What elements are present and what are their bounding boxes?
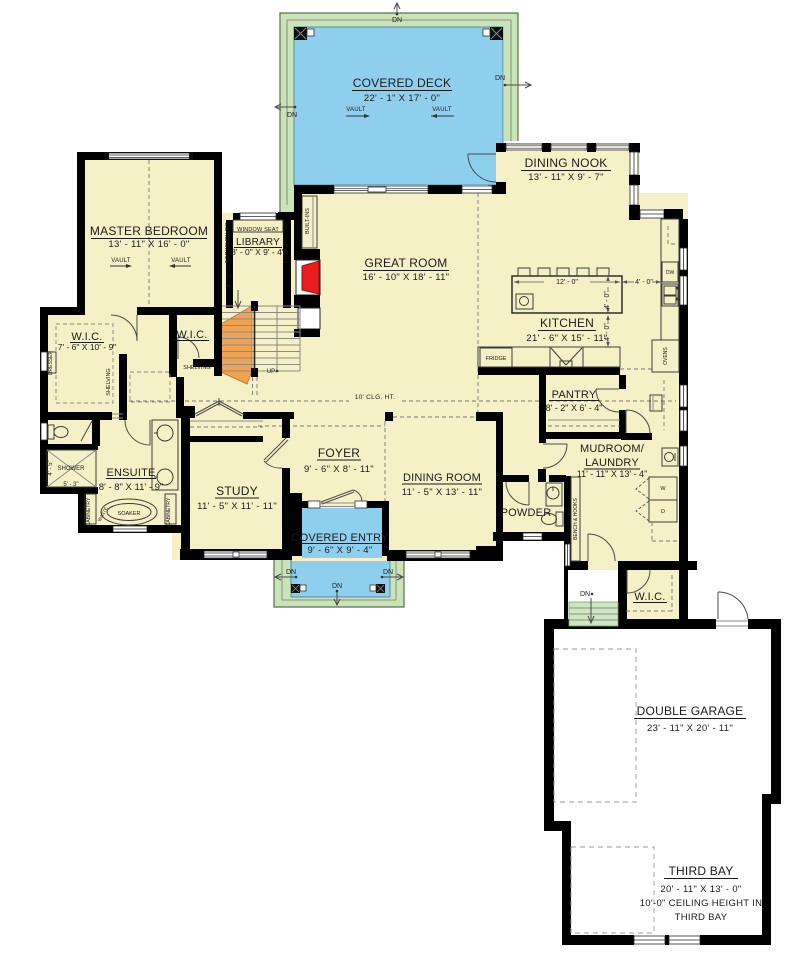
svg-text:11' - 11" X 13' - 4": 11' - 11" X 13' - 4" (577, 469, 648, 479)
svg-text:MASTER BEDROOM: MASTER BEDROOM (90, 224, 208, 238)
svg-text:W: W (660, 486, 666, 492)
svg-text:FOYER: FOYER (318, 446, 360, 460)
svg-text:DN: DN (383, 569, 393, 576)
svg-text:4' - 0": 4' - 0" (227, 272, 233, 287)
svg-text:22' - 1" X 17' - 0": 22' - 1" X 17' - 0" (364, 93, 440, 104)
svg-text:DOUBLE GARAGE: DOUBLE GARAGE (637, 704, 744, 718)
svg-text:KITCHEN: KITCHEN (540, 316, 594, 330)
svg-text:W.I.C.: W.I.C. (176, 329, 207, 341)
svg-text:ENSUITE: ENSUITE (106, 467, 155, 479)
svg-text:DW: DW (666, 270, 675, 276)
svg-text:SHOWER: SHOWER (58, 466, 86, 472)
svg-text:WINDOW SEAT: WINDOW SEAT (237, 227, 279, 233)
svg-text:DN: DN (580, 591, 590, 598)
svg-text:VAULT: VAULT (111, 258, 131, 264)
svg-text:PANTRY: PANTRY (552, 389, 597, 401)
svg-text:9' - 6" X 8' - 11": 9' - 6" X 8' - 11" (304, 464, 374, 475)
svg-text:SHELVING: SHELVING (183, 365, 210, 371)
svg-text:POWDER: POWDER (501, 507, 552, 519)
svg-text:DRESSER: DRESSER (48, 351, 54, 376)
svg-text:DN: DN (287, 112, 297, 119)
svg-text:D: D (661, 509, 665, 515)
svg-text:11' - 5" X 13' - 11": 11' - 5" X 13' - 11" (402, 487, 482, 498)
svg-text:OVENS: OVENS (663, 347, 669, 365)
svg-text:BOOKSHELVES: BOOKSHELVES (225, 222, 231, 263)
svg-text:23' - 11" X 20' - 11": 23' - 11" X 20' - 11" (647, 723, 733, 734)
svg-text:DN: DN (332, 583, 342, 590)
svg-text:11' - 5" X 11' - 11": 11' - 5" X 11' - 11" (197, 501, 277, 512)
svg-text:COVERED DECK: COVERED DECK (353, 76, 451, 90)
svg-text:4' - 5": 4' - 5" (48, 460, 54, 475)
svg-text:DINING NOOK: DINING NOOK (525, 156, 608, 170)
svg-text:SHELVING: SHELVING (106, 368, 112, 395)
svg-text:BOOKSHELVES: BOOKSHELVES (283, 222, 289, 263)
svg-text:THIRD BAY: THIRD BAY (675, 912, 728, 923)
svg-text:4' - 0": 4' - 0" (635, 279, 653, 286)
svg-text:STUDY: STUDY (216, 484, 258, 498)
svg-text:DN: DN (392, 17, 402, 24)
svg-text:BUILT-INS: BUILT-INS (305, 208, 311, 234)
svg-text:7' - 6" X 10' - 9": 7' - 6" X 10' - 9" (58, 342, 116, 352)
svg-text:4' - 0": 4' - 0" (604, 323, 611, 341)
svg-text:MUDROOM/: MUDROOM/ (580, 443, 645, 455)
svg-text:12' - 0": 12' - 0" (556, 279, 578, 286)
svg-text:5' - 3": 5' - 3" (63, 482, 78, 488)
svg-text:FRIDGE: FRIDGE (486, 356, 507, 362)
svg-text:8' - 2" X 6' - 4": 8' - 2" X 6' - 4" (546, 403, 603, 413)
svg-text:BENCH & HOOKS: BENCH & HOOKS (573, 498, 579, 540)
svg-text:CABINETRY: CABINETRY (166, 497, 172, 526)
svg-text:4' - 0": 4' - 0" (604, 291, 611, 309)
svg-text:10' CLG. HT.: 10' CLG. HT. (355, 394, 396, 401)
svg-text:UP: UP (267, 369, 275, 375)
svg-text:DINING ROOM: DINING ROOM (403, 472, 481, 484)
svg-text:10'-0" CEILING HEIGHT IN: 10'-0" CEILING HEIGHT IN (640, 898, 763, 909)
svg-text:VAULT: VAULT (432, 107, 452, 113)
svg-text:W.I.C.: W.I.C. (634, 591, 665, 603)
svg-text:SOAKER: SOAKER (118, 511, 141, 517)
svg-text:CABINETRY: CABINETRY (86, 497, 92, 526)
svg-text:LAUNDRY: LAUNDRY (585, 457, 639, 469)
svg-text:THIRD BAY: THIRD BAY (669, 864, 734, 878)
svg-text:13' - 11" X 9' - 7": 13' - 11" X 9' - 7" (528, 172, 604, 183)
svg-text:VAULT: VAULT (171, 258, 191, 264)
svg-text:8' - 8" X 11' - 9": 8' - 8" X 11' - 9" (99, 482, 164, 493)
svg-text:20' - 11" X 13' - 0": 20' - 11" X 13' - 0" (660, 884, 741, 895)
svg-text:VAULT: VAULT (346, 107, 366, 113)
svg-text:COVERED ENTRY: COVERED ENTRY (291, 532, 389, 544)
svg-text:21' - 6" X 15' - 11": 21' - 6" X 15' - 11" (526, 333, 607, 344)
svg-text:16' - 10" X 18' - 11": 16' - 10" X 18' - 11" (363, 272, 450, 283)
svg-text:GREAT ROOM: GREAT ROOM (365, 256, 448, 270)
svg-text:DN: DN (286, 569, 296, 576)
svg-text:9' - 6" X 9' - 4": 9' - 6" X 9' - 4" (307, 545, 372, 556)
svg-text:13' - 11" X 16' - 0": 13' - 11" X 16' - 0" (108, 239, 189, 250)
svg-text:8' - 0" X 9' - 4": 8' - 0" X 9' - 4" (231, 247, 285, 257)
svg-text:DN: DN (495, 75, 505, 82)
